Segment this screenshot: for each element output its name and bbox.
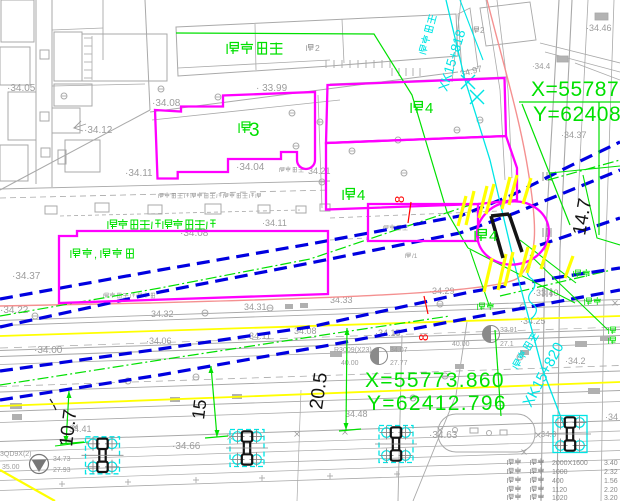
svg-text:·34.2: ·34.2	[565, 356, 586, 366]
svg-text:2000X1600: 2000X1600	[552, 460, 588, 467]
svg-text:35.00: 35.00	[2, 464, 20, 471]
svg-text:·34.06: ·34.06	[146, 336, 172, 346]
svg-text:34.07: 34.07	[390, 347, 408, 354]
svg-text:34.31: 34.31	[244, 302, 267, 312]
svg-text:1000: 1000	[552, 469, 568, 476]
svg-text:·34.11: ·34.11	[262, 218, 287, 228]
svg-text:·34.46: ·34.46	[586, 23, 612, 33]
svg-text:3QD9X(2): 3QD9X(2)	[0, 451, 32, 458]
svg-text:·34.22: ·34.22	[0, 305, 29, 316]
svg-text:·34.00: ·34.00	[34, 345, 63, 356]
svg-text:·34.3: ·34.3	[538, 430, 557, 439]
svg-text:1.56: 1.56	[604, 478, 618, 485]
svg-text:·34.63: ·34.63	[429, 430, 458, 441]
svg-text:3.20: 3.20	[604, 495, 618, 501]
svg-text:·34.37: ·34.37	[12, 271, 41, 282]
svg-text:·34.08: ·34.08	[152, 98, 181, 109]
svg-text:,: ,	[94, 249, 97, 261]
svg-text:34.32: 34.32	[151, 309, 174, 319]
svg-text:·34.08: ·34.08	[180, 228, 209, 239]
svg-text:40.00: 40.00	[452, 341, 470, 348]
svg-text:40.00: 40.00	[341, 360, 359, 367]
svg-text:·34: ·34	[605, 412, 618, 422]
svg-text:4: 4	[425, 100, 433, 117]
svg-text:·34.4: ·34.4	[532, 62, 551, 71]
svg-text:2: 2	[480, 26, 485, 35]
svg-text:·34.05: ·34.05	[7, 83, 36, 94]
svg-text:X=55787: X=55787	[531, 78, 619, 101]
svg-text:27.77: 27.77	[390, 360, 408, 367]
svg-text:·34.66: ·34.66	[172, 441, 201, 452]
svg-text:2.20: 2.20	[604, 487, 618, 494]
svg-text:15: 15	[188, 398, 210, 420]
svg-text:·34.11: ·34.11	[125, 168, 153, 179]
svg-text:34.73: 34.73	[53, 456, 71, 463]
svg-text:4: 4	[357, 187, 365, 204]
svg-text:27.93: 27.93	[53, 467, 71, 474]
svg-text:·34.04: ·34.04	[236, 162, 265, 173]
svg-text:27.1: 27.1	[500, 341, 514, 348]
svg-text:3: 3	[249, 120, 260, 141]
svg-text:33.91: 33.91	[500, 327, 518, 334]
svg-text:400: 400	[552, 478, 564, 485]
svg-text:8: 8	[416, 334, 431, 341]
svg-text:R3009(X23): R3009(X23)	[334, 347, 372, 354]
svg-text:10.7: 10.7	[56, 408, 81, 447]
svg-text:2.32: 2.32	[604, 469, 618, 476]
svg-text:X=55773.860: X=55773.860	[365, 369, 505, 392]
svg-text:2: 2	[315, 43, 320, 53]
svg-text:4: 4	[489, 228, 497, 245]
svg-text:·34.12: ·34.12	[84, 125, 113, 136]
svg-text:/1: /1	[412, 253, 418, 260]
svg-text:3.40: 3.40	[604, 460, 618, 467]
svg-text:1120: 1120	[552, 487, 567, 494]
svg-text:8: 8	[392, 196, 407, 203]
svg-text:1020: 1020	[552, 495, 568, 501]
svg-text:Y=62408: Y=62408	[533, 103, 620, 126]
svg-text:Y=62412.796: Y=62412.796	[367, 392, 507, 415]
svg-text:·34.37: ·34.37	[561, 130, 587, 140]
svg-text:34.48: 34.48	[345, 409, 368, 419]
